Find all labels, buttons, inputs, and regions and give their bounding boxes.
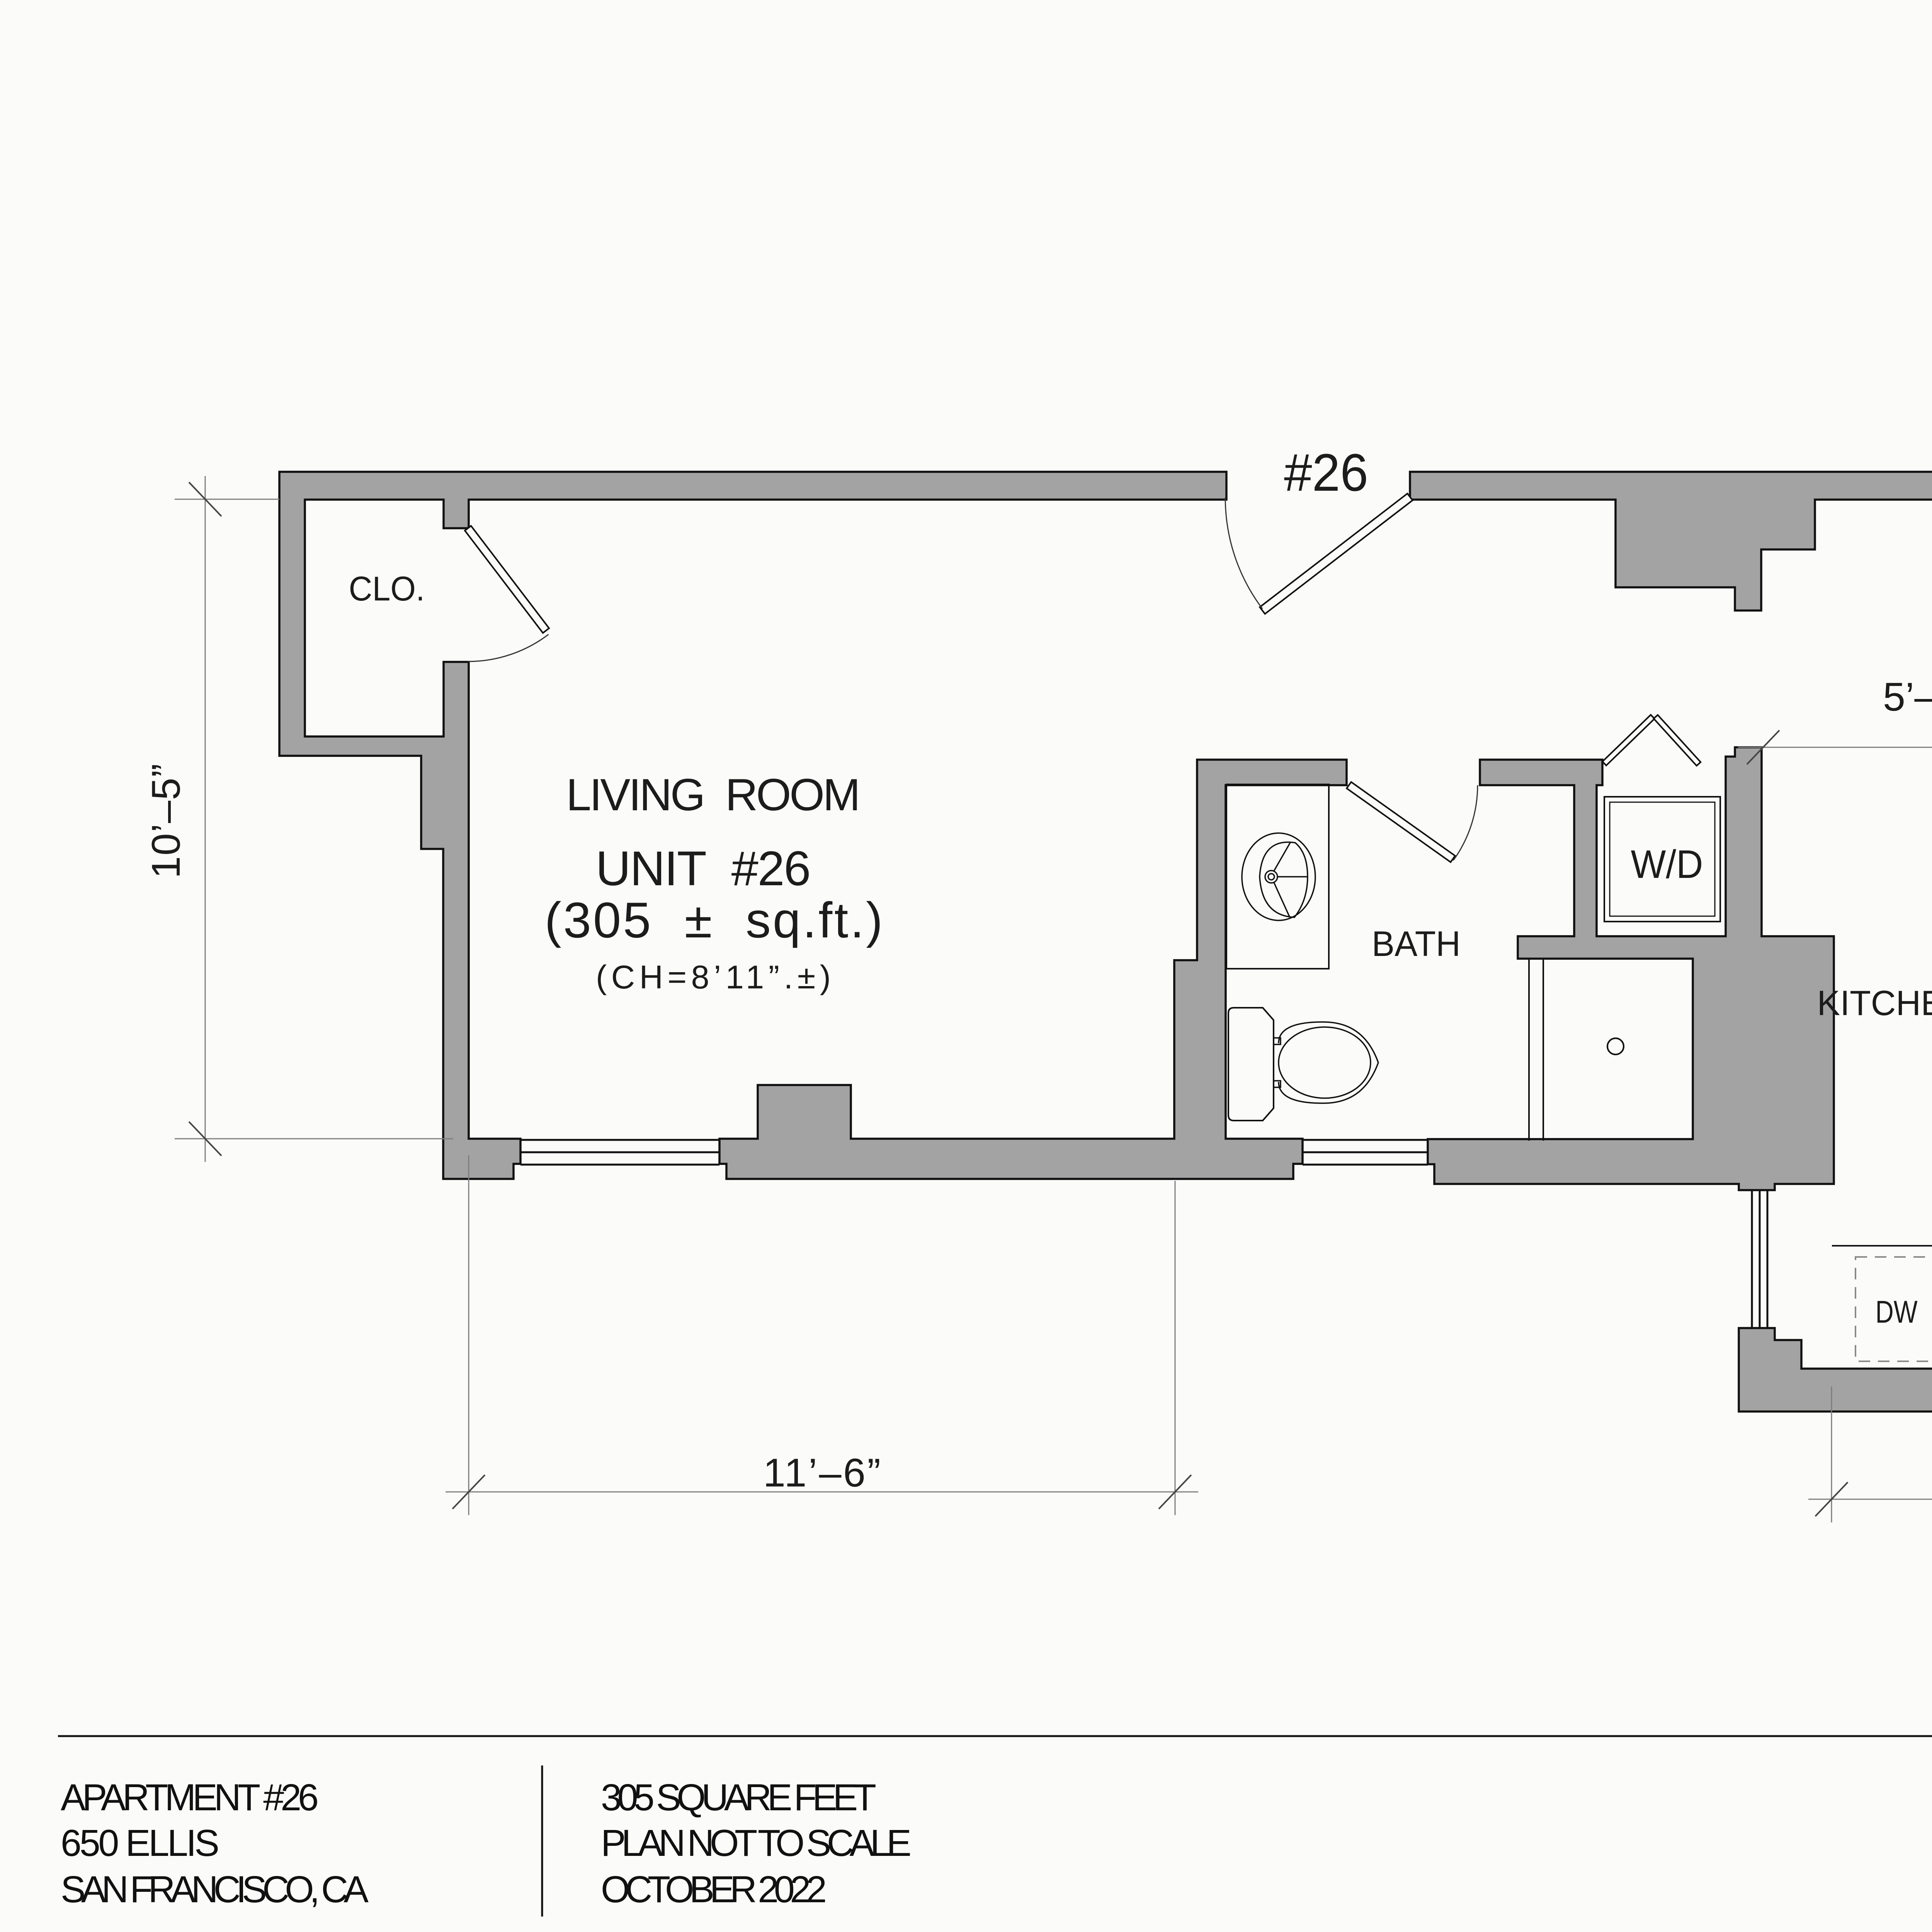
svg-text:LIVING ROOM: LIVING ROOM: [566, 769, 861, 820]
svg-text:APARTMENT #26: APARTMENT #26: [61, 1776, 319, 1818]
svg-text:650 ELLIS: 650 ELLIS: [61, 1822, 219, 1864]
svg-text:SAN FRANCISCO, CA: SAN FRANCISCO, CA: [61, 1868, 369, 1910]
svg-text:DW: DW: [1876, 1294, 1918, 1330]
svg-text:UNIT #26: UNIT #26: [596, 841, 811, 896]
svg-text:OCTOBER 2022: OCTOBER 2022: [601, 1868, 827, 1910]
svg-text:10’–5”: 10’–5”: [144, 764, 189, 879]
svg-text:(305 ± sq.ft.): (305 ± sq.ft.): [545, 892, 883, 948]
svg-text:BATH: BATH: [1372, 924, 1461, 964]
svg-text:#26: #26: [1284, 443, 1368, 502]
svg-text:KITCHEN: KITCHEN: [1817, 984, 1932, 1023]
svg-text:305 SQUARE FEET: 305 SQUARE FEET: [601, 1776, 876, 1818]
svg-text:5’–3”: 5’–3”: [1883, 675, 1932, 719]
svg-text:PLAN NOT TO SCALE: PLAN NOT TO SCALE: [601, 1822, 912, 1864]
svg-text:W/D: W/D: [1631, 842, 1703, 886]
svg-text:CLO.: CLO.: [349, 569, 425, 608]
svg-text:11’–6”: 11’–6”: [763, 1451, 881, 1495]
